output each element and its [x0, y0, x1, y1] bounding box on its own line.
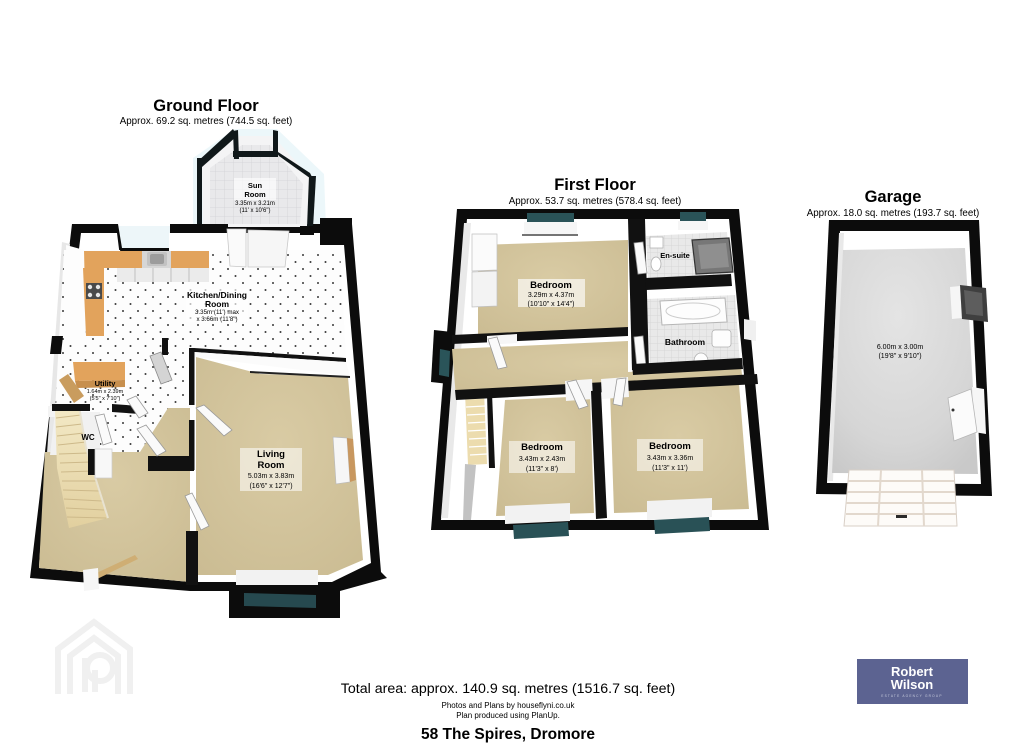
svg-text:Bedroom: Bedroom — [649, 441, 691, 452]
svg-text:(19'8" x 9'10"): (19'8" x 9'10") — [878, 353, 921, 360]
svg-text:Bedroom: Bedroom — [521, 442, 563, 453]
svg-text:Utility: Utility — [95, 379, 117, 388]
svg-text:WC: WC — [81, 433, 95, 442]
svg-text:Room: Room — [205, 299, 230, 309]
svg-text:Total area: approx. 140.9 sq.: Total area: approx. 140.9 sq. metres (15… — [341, 681, 675, 697]
svg-text:3.35m x 3.21m: 3.35m x 3.21m — [235, 201, 275, 207]
svg-text:Ground Floor: Ground Floor — [153, 97, 259, 115]
svg-text:(11' x 10'6"): (11' x 10'6") — [240, 208, 271, 214]
svg-text:Room: Room — [258, 460, 285, 471]
svg-text:Approx. 53.7 sq. metres (578.4: Approx. 53.7 sq. metres (578.4 sq. feet) — [509, 196, 682, 207]
svg-text:Photos and Plans by houseflyni: Photos and Plans by houseflyni.co.uk — [442, 701, 576, 710]
svg-text:(10'10" x 14'4"): (10'10" x 14'4") — [528, 301, 575, 308]
svg-text:Bedroom: Bedroom — [530, 280, 572, 291]
svg-text:(11'3" x 8'): (11'3" x 8') — [526, 466, 558, 473]
svg-text:(16'6" x 12'7"): (16'6" x 12'7") — [249, 483, 292, 490]
svg-text:6.00m x 3.00m: 6.00m x 3.00m — [877, 344, 923, 351]
svg-text:Approx. 69.2 sq. metres (744.5: Approx. 69.2 sq. metres (744.5 sq. feet) — [120, 116, 293, 127]
svg-text:Bathroom: Bathroom — [665, 337, 706, 347]
svg-text:Wilson: Wilson — [891, 677, 934, 692]
svg-text:First Floor: First Floor — [554, 176, 636, 194]
svg-text:3.43m x 2.43m: 3.43m x 2.43m — [519, 456, 565, 463]
svg-text:(5'5" x 7'10"): (5'5" x 7'10") — [90, 396, 121, 402]
svg-text:1.64m x 2.39m: 1.64m x 2.39m — [87, 389, 124, 395]
svg-text:(11'3" x 11'): (11'3" x 11') — [652, 465, 688, 472]
svg-text:58 The Spires, Dromore: 58 The Spires, Dromore — [421, 726, 595, 743]
svg-text:Approx. 18.0 sq. metres (193.7: Approx. 18.0 sq. metres (193.7 sq. feet) — [807, 208, 980, 219]
svg-text:5.03m x 3.83m: 5.03m x 3.83m — [248, 473, 294, 480]
svg-text:Sun: Sun — [248, 181, 263, 190]
svg-text:En-suite: En-suite — [660, 251, 690, 260]
svg-text:Plan produced using PlanUp.: Plan produced using PlanUp. — [456, 711, 560, 720]
svg-text:Living: Living — [257, 449, 285, 460]
svg-text:Garage: Garage — [865, 188, 922, 206]
svg-text:3.29m x 4.37m: 3.29m x 4.37m — [528, 292, 574, 299]
svg-text:3.35m (11') max: 3.35m (11') max — [195, 309, 240, 316]
svg-text:x 3.66m (11'8"): x 3.66m (11'8") — [196, 316, 237, 323]
svg-text:3.43m x 3.36m: 3.43m x 3.36m — [647, 455, 693, 462]
svg-text:Room: Room — [244, 190, 266, 199]
svg-text:ESTATE AGENCY GROUP: ESTATE AGENCY GROUP — [881, 694, 942, 698]
